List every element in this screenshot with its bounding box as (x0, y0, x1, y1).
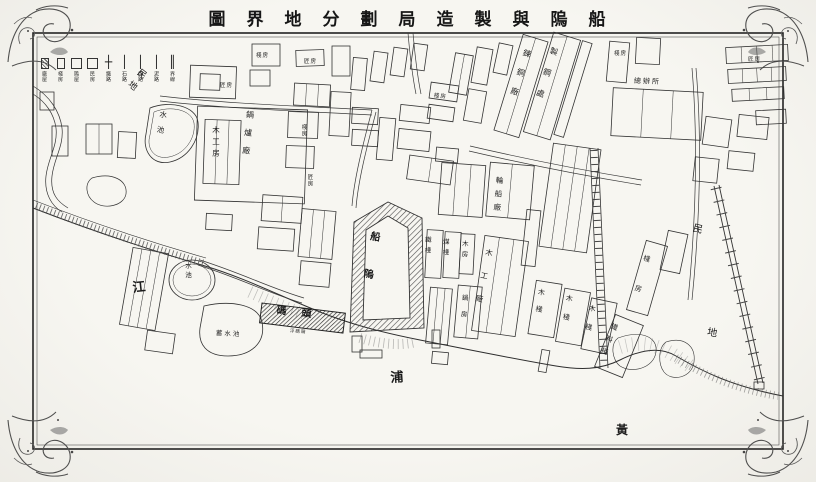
building-partition (433, 288, 438, 344)
building (250, 70, 270, 86)
building (728, 66, 787, 83)
building-partition (281, 196, 283, 222)
legend-label: 民房 (89, 71, 96, 82)
pier-right (714, 185, 764, 389)
building-partition (766, 88, 767, 100)
legend-symbol-line-thin: │ (153, 55, 160, 69)
building (554, 41, 592, 138)
building-partition (741, 47, 742, 63)
legend-item: 棧房 (54, 55, 67, 82)
legend-symbol-cross-line: ┼ (105, 55, 112, 69)
building (399, 104, 431, 123)
building-outline (298, 209, 336, 260)
label-river-huang: 黃 (616, 424, 628, 436)
building (732, 87, 785, 102)
building (606, 41, 629, 83)
building (261, 195, 303, 224)
legend-item: 廠屋 (38, 55, 51, 82)
building-outline (390, 47, 408, 77)
building (635, 37, 660, 64)
building-outline (293, 83, 330, 107)
legend-label: 界線 (169, 71, 176, 82)
building-outline (702, 116, 732, 147)
building (410, 43, 427, 71)
building-partition (575, 148, 589, 251)
label-iron-yard: 鐵棧 (423, 236, 430, 257)
building-outline (397, 128, 431, 151)
building (206, 213, 233, 230)
building-outline (606, 41, 629, 83)
building-partition (742, 69, 743, 83)
building-outline (727, 151, 755, 172)
building (660, 230, 688, 273)
building-outline (351, 57, 368, 90)
road-line (160, 96, 372, 110)
label-small-3: 匠房 (304, 60, 317, 66)
legend: 廠屋棧房隖屋民房┼鐵路│石路│煤路│泥路║界線 (38, 55, 179, 82)
building-partition (317, 84, 318, 106)
building (390, 47, 408, 77)
legend-item: │泥路 (150, 55, 163, 82)
label-head-office: 總辦所 (634, 78, 661, 86)
road-line (356, 112, 376, 208)
legend-square-glyph (87, 58, 98, 69)
building-outline (635, 37, 660, 64)
building-outline (370, 51, 388, 83)
building-partition (508, 164, 513, 218)
label-small-8: 匠房 (748, 57, 761, 63)
building-outline (611, 88, 703, 141)
building (539, 143, 601, 253)
label-boiler-house: 鍋房 (459, 294, 468, 327)
building (407, 155, 454, 185)
building (293, 83, 330, 107)
roads (160, 33, 699, 303)
map-page: 圖 界 地 分 劃 局 造 製 與 隖 船 (0, 0, 816, 482)
building-outline (521, 209, 541, 266)
label-carpentry-house: 木工房 (212, 126, 220, 161)
building-outline (493, 43, 513, 75)
label-small-1: 匠房 (220, 84, 233, 90)
building (298, 209, 336, 260)
label-river-jiang: 江 (132, 281, 146, 295)
building-partition (468, 165, 472, 217)
legend-label: 石路 (121, 71, 128, 82)
legend-item: ┼鐵路 (102, 55, 115, 82)
building-outline (206, 213, 233, 230)
label-small-2: 棧房 (256, 54, 269, 60)
building-outline (693, 157, 719, 183)
legend-symbol-square-hatched (41, 55, 49, 69)
building-outline (299, 261, 331, 288)
building (117, 132, 136, 159)
building-outline (203, 119, 241, 184)
building-partition (453, 164, 457, 216)
building-outline (52, 126, 68, 156)
building-partition (305, 84, 306, 106)
corner-ornament-br (743, 412, 808, 476)
building (376, 117, 396, 160)
label-wood-house: 木房 (460, 240, 467, 261)
legend-symbol-square-bold (71, 55, 82, 69)
building (493, 43, 513, 75)
building (299, 261, 331, 288)
building-partition (771, 67, 772, 81)
building (351, 57, 368, 90)
building-outline (660, 230, 688, 273)
label-pond2: 水池 (184, 262, 191, 281)
building (370, 51, 388, 83)
legend-label: 泥路 (153, 71, 160, 82)
building (257, 227, 294, 251)
road-line (688, 68, 695, 300)
building-partition (551, 145, 565, 248)
legend-item: 民房 (86, 55, 99, 82)
building-outline (200, 74, 221, 91)
legend-symbol-square (57, 55, 65, 69)
building (203, 119, 241, 184)
legend-label: 廠屋 (41, 71, 48, 82)
legend-symbol-line-thick: │ (121, 55, 128, 69)
building-outline (376, 117, 396, 160)
building (471, 47, 493, 85)
building-outline (189, 65, 236, 99)
building (727, 151, 755, 172)
building-partition (772, 45, 773, 61)
building-outline (399, 104, 431, 123)
legend-item: ║界線 (166, 55, 179, 82)
legend-square-glyph (71, 58, 82, 69)
building (145, 330, 176, 354)
legend-label: 隖屋 (73, 71, 80, 82)
road-line (198, 265, 302, 303)
legend-item: 隖屋 (70, 55, 83, 82)
building-outline (286, 146, 315, 169)
label-coal-yard: 煤棧 (441, 238, 448, 259)
legend-label: 棧房 (57, 71, 64, 82)
building-outline (250, 70, 270, 86)
road-line (408, 33, 416, 94)
building-partition (563, 147, 577, 250)
building-outline (332, 46, 350, 76)
building (521, 209, 541, 266)
road-line (692, 68, 699, 300)
building-partition (440, 288, 445, 344)
building-outline (471, 47, 493, 85)
building-outline (432, 351, 449, 364)
building (438, 163, 486, 218)
building (693, 157, 719, 183)
legend-label: 鐵路 (105, 71, 112, 82)
building (432, 351, 449, 364)
legend-symbol-line-double: ║ (169, 55, 176, 69)
building-outline (145, 330, 176, 354)
building-partition (641, 89, 644, 137)
building (52, 126, 68, 156)
building-outline (737, 114, 769, 139)
building (200, 74, 221, 91)
label-mindi-right-2: 地 (706, 328, 718, 340)
building-outline (732, 87, 785, 102)
dry-dock-shape (350, 202, 424, 332)
building (426, 287, 453, 345)
building (737, 114, 769, 139)
building (702, 116, 732, 147)
building-partition (227, 120, 229, 184)
legend-square-glyph (57, 58, 65, 69)
road-line (200, 260, 304, 298)
building (397, 128, 431, 151)
building-partition (501, 239, 514, 334)
label-reservoir: 蓄水池 (216, 330, 242, 338)
building-outline (117, 132, 136, 159)
small-piers (352, 330, 550, 373)
building (86, 124, 112, 154)
building-partition (757, 68, 758, 82)
building-outline (427, 104, 455, 121)
building-outline (426, 287, 453, 345)
label-small-5: 匠房 (306, 174, 312, 187)
legend-square-glyph (41, 58, 49, 69)
building (286, 146, 315, 169)
label-small-4: 棧房 (300, 124, 306, 137)
railway-track (590, 148, 608, 368)
building-partition (428, 158, 431, 182)
building (189, 65, 236, 99)
corner-ornament-bl (8, 412, 73, 476)
label-river-pu: 浦 (390, 371, 404, 385)
label-small-7: 棧房 (614, 52, 627, 58)
building-outline (257, 227, 294, 251)
building-partition (671, 91, 674, 139)
building (427, 104, 455, 121)
building-partition (309, 210, 313, 258)
building-outline (438, 163, 486, 218)
building (332, 46, 350, 76)
building-partition (321, 211, 325, 259)
building-partition (749, 88, 750, 100)
legend-symbol-square-thin (87, 55, 98, 69)
building-outline (554, 41, 592, 138)
building (611, 88, 703, 141)
building-outline (410, 43, 427, 71)
